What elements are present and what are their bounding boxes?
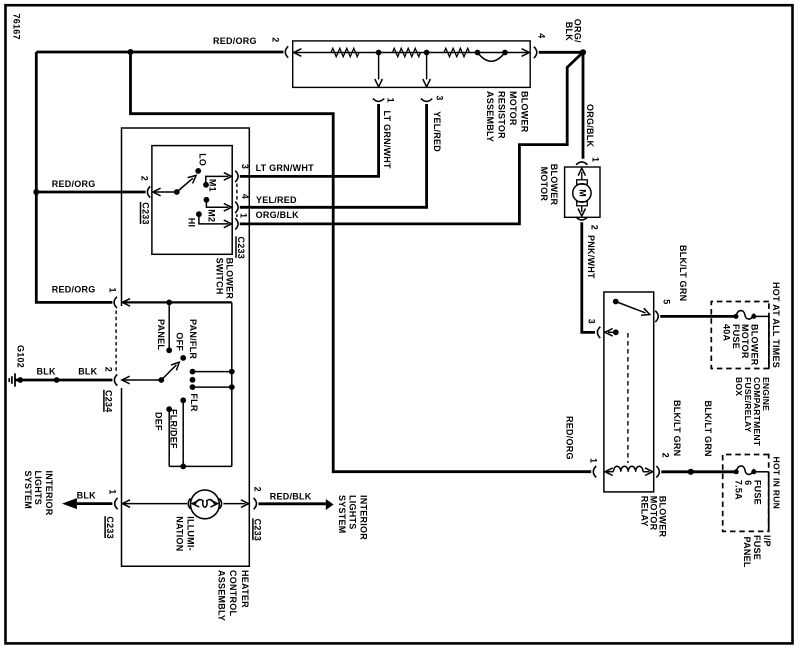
svg-text:76167: 76167 — [12, 14, 22, 40]
svg-text:OFF: OFF — [175, 332, 185, 351]
svg-text:ILLUMI-: ILLUMI- — [185, 516, 195, 551]
svg-text:G102: G102 — [16, 345, 26, 368]
svg-text:5: 5 — [661, 299, 671, 304]
svg-text:BLK: BLK — [77, 491, 96, 501]
svg-text:C233: C233 — [140, 202, 150, 225]
svg-text:BLOWER: BLOWER — [224, 258, 234, 300]
svg-text:YEL/RED: YEL/RED — [256, 195, 297, 205]
svg-text:HEATER: HEATER — [240, 570, 250, 608]
svg-text:RESISTOR: RESISTOR — [497, 91, 507, 139]
svg-text:1: 1 — [108, 288, 118, 293]
svg-text:LO: LO — [198, 153, 208, 166]
svg-text:3: 3 — [435, 95, 445, 100]
svg-text:3: 3 — [587, 319, 597, 324]
svg-text:I/P: I/P — [762, 535, 772, 547]
svg-text:LIGHTS: LIGHTS — [33, 471, 43, 506]
svg-text:C233: C233 — [253, 519, 263, 542]
svg-text:RED/ORG: RED/ORG — [52, 285, 96, 295]
svg-text:LT GRN/WHT: LT GRN/WHT — [382, 111, 392, 170]
svg-text:2: 2 — [270, 37, 280, 42]
svg-text:LIGHTS: LIGHTS — [347, 495, 357, 530]
svg-text:2: 2 — [590, 225, 600, 230]
svg-text:RELAY: RELAY — [639, 496, 649, 527]
svg-text:C233: C233 — [236, 237, 246, 260]
svg-text:RED/ORG: RED/ORG — [213, 36, 257, 46]
svg-text:INTERIOR: INTERIOR — [358, 495, 368, 540]
svg-text:SYSTEM: SYSTEM — [23, 471, 33, 510]
svg-text:SWITCH: SWITCH — [215, 258, 225, 295]
svg-text:BLK: BLK — [37, 366, 56, 376]
svg-text:HI: HI — [186, 218, 196, 228]
svg-text:ORG/BLK: ORG/BLK — [585, 104, 595, 147]
svg-text:BLK: BLK — [564, 22, 574, 41]
svg-text:2: 2 — [104, 367, 114, 372]
svg-text:1: 1 — [385, 98, 395, 103]
svg-text:40A: 40A — [722, 324, 732, 342]
svg-text:DEF: DEF — [154, 412, 164, 431]
svg-text:1: 1 — [590, 157, 600, 162]
svg-text:2: 2 — [253, 487, 263, 492]
svg-text:BLK/LT GRN: BLK/LT GRN — [703, 401, 713, 457]
svg-text:4: 4 — [240, 194, 250, 199]
svg-text:M2: M2 — [206, 209, 216, 222]
svg-text:C234: C234 — [104, 390, 114, 413]
svg-text:INTERIOR: INTERIOR — [44, 471, 54, 516]
svg-text:3: 3 — [240, 164, 250, 169]
svg-text:2: 2 — [139, 176, 149, 181]
svg-text:HOT IN RUN: HOT IN RUN — [771, 457, 781, 510]
svg-text:ASSEMBLY: ASSEMBLY — [217, 570, 227, 621]
svg-text:MOTOR: MOTOR — [539, 167, 549, 202]
svg-text:BLK/LT GRN: BLK/LT GRN — [678, 245, 688, 301]
svg-text:1: 1 — [238, 213, 248, 218]
svg-text:PNK/WHT: PNK/WHT — [586, 235, 596, 279]
svg-text:2: 2 — [661, 453, 671, 458]
svg-text:BLOWER: BLOWER — [549, 164, 559, 206]
svg-text:PAN/FLR: PAN/FLR — [188, 319, 198, 359]
svg-text:1: 1 — [108, 489, 118, 494]
svg-text:ORG/BLK: ORG/BLK — [256, 210, 299, 220]
svg-text:HOT AT ALL TIMES: HOT AT ALL TIMES — [771, 282, 781, 368]
svg-text:BOX: BOX — [734, 377, 744, 396]
svg-text:7.5A: 7.5A — [734, 480, 744, 500]
svg-text:PANEL: PANEL — [742, 537, 752, 568]
svg-text:MOTOR: MOTOR — [508, 91, 518, 126]
svg-text:M1: M1 — [207, 179, 217, 192]
svg-text:SYSTEM: SYSTEM — [337, 495, 347, 534]
svg-text:LT GRN/WHT: LT GRN/WHT — [256, 163, 315, 173]
svg-text:PANEL: PANEL — [156, 319, 166, 350]
svg-text:NATION: NATION — [174, 516, 184, 551]
svg-text:RED/ORG: RED/ORG — [564, 416, 574, 460]
svg-text:RED/BLK: RED/BLK — [270, 492, 312, 502]
svg-text:CONTROL: CONTROL — [228, 570, 238, 616]
svg-text:RED/ORG: RED/ORG — [52, 179, 96, 189]
svg-text:ASSEMBLY: ASSEMBLY — [485, 91, 495, 142]
svg-text:BLOWER: BLOWER — [520, 91, 530, 133]
svg-text:1: 1 — [588, 458, 598, 463]
svg-text:BLK/LT GRN: BLK/LT GRN — [672, 400, 682, 456]
svg-text:M: M — [577, 189, 587, 197]
svg-text:YEL/RED: YEL/RED — [432, 111, 442, 152]
svg-text:FLR: FLR — [189, 393, 199, 411]
svg-text:FUSE: FUSE — [752, 535, 762, 560]
svg-text:4: 4 — [537, 33, 547, 38]
svg-text:BLK: BLK — [78, 366, 97, 376]
svg-text:C233: C233 — [105, 516, 115, 539]
